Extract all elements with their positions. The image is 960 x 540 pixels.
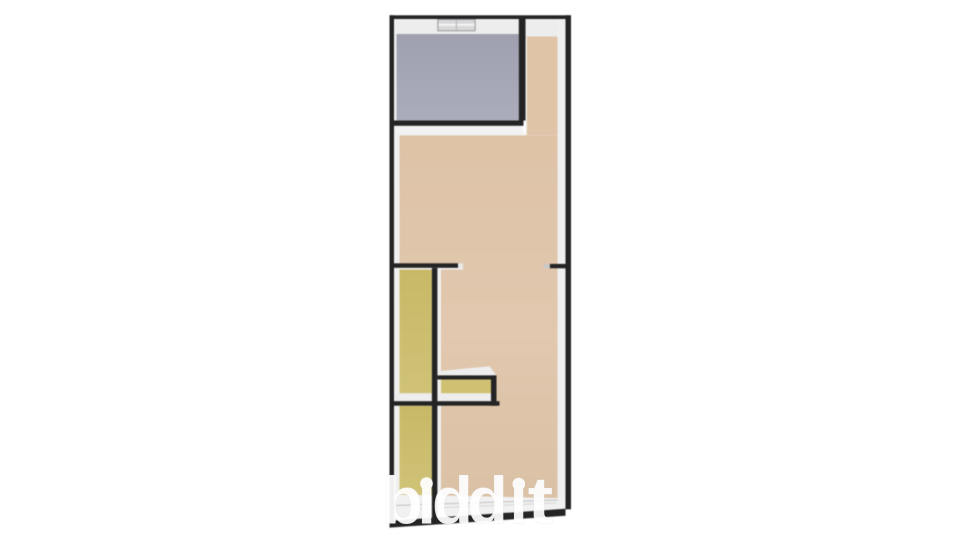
- svg-text:t: t: [528, 464, 554, 538]
- svg-text:ı: ı: [509, 464, 528, 539]
- svg-text:d: d: [467, 464, 508, 539]
